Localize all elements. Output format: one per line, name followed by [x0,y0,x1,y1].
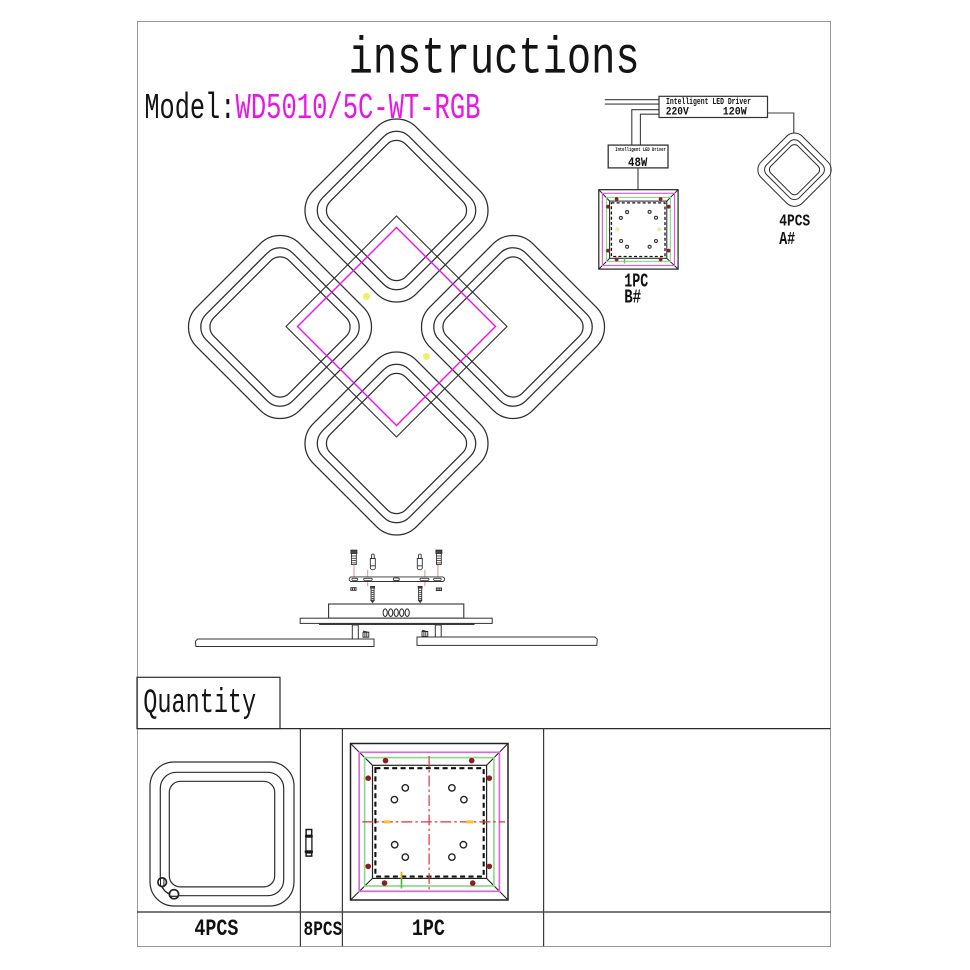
svg-text:120W: 120W [723,107,747,119]
svg-text:1PC: 1PC [412,917,445,943]
svg-text:WD5010/5C-WT-RGB: WD5010/5C-WT-RGB [236,88,481,129]
svg-text:A#: A# [779,229,795,250]
svg-text:4PCS: 4PCS [194,917,238,943]
svg-text:Quantity: Quantity [143,685,256,723]
svg-text:220V: 220V [666,107,689,119]
svg-text:Model:: Model: [144,88,235,129]
svg-text:48W: 48W [628,155,648,170]
svg-text:8PCS: 8PCS [304,919,343,942]
svg-text:Intelligent LED Driver: Intelligent LED Driver [615,147,666,153]
svg-text:instructions: instructions [349,29,640,88]
svg-text:B#: B# [624,287,641,309]
